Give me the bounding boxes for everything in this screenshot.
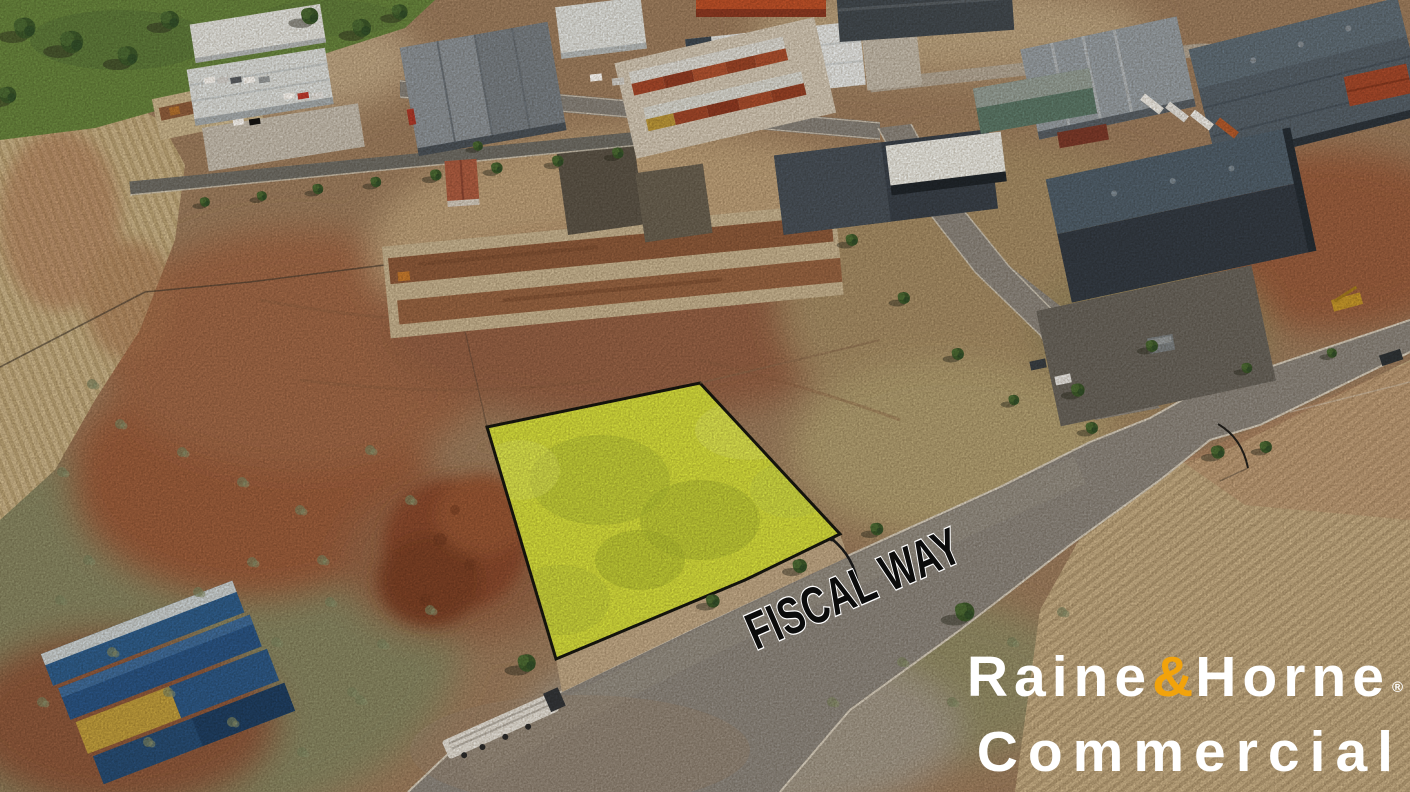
brand-ampersand: & [1152,645,1195,709]
brand-line1: Raine&Horne® [967,645,1403,720]
aerial-listing-photo: FISCAL WAY Raine&Horne® Commercial [0,0,1410,792]
brand-line2: Commercial [967,720,1403,784]
brand-word-raine: Raine [967,645,1152,709]
brand-word-horne: Horne [1195,645,1390,709]
registered-mark: ® [1392,679,1403,696]
brand-watermark: Raine&Horne® Commercial [967,645,1403,784]
